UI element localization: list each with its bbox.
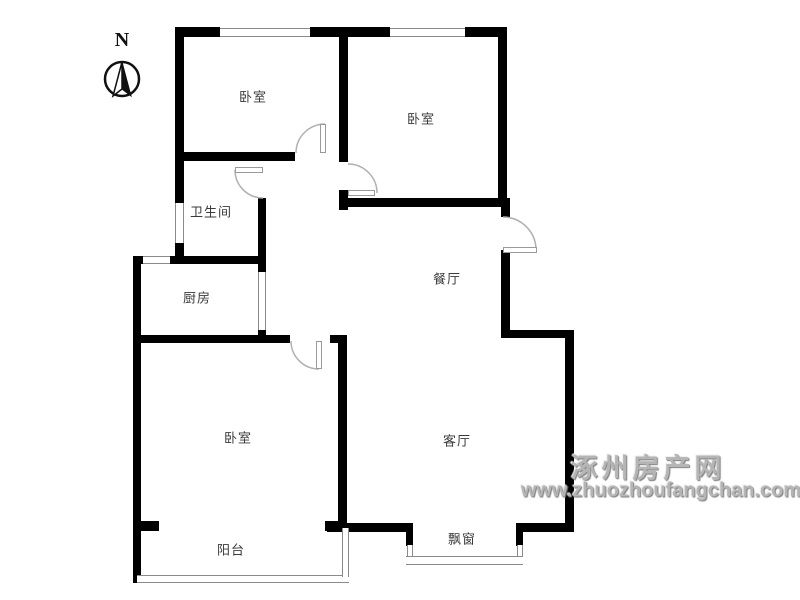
room-label-dining-room: 餐厅 [433,269,461,288]
room-label-bathroom: 卫生间 [190,202,232,221]
room-label-bay-window: 飘窗 [448,529,476,548]
door-arc-bathroom [235,170,263,198]
door-leaf [503,247,537,253]
floor-plan: N 卧室 卧室 卫生间 厨房 餐厅 客厅 卧室 阳台 飘窗 涿州房产网 www.… [0,0,800,600]
compass-needle-east [122,62,131,96]
watermark-site-url: www.zhuozhoufangchan.com [521,480,800,503]
door-leaf [348,190,375,196]
door-leaf [316,341,322,369]
north-label: N [115,29,130,51]
door-arc-bedroom-2 [348,164,377,193]
room-label-kitchen: 厨房 [183,288,211,307]
compass-needle-west [113,62,122,96]
door-arc-entry [503,217,536,250]
room-label-living-room: 客厅 [443,431,471,450]
room-label-bedroom-top-left: 卧室 [239,87,267,106]
room-label-balcony: 阳台 [217,540,245,559]
door-leaf [235,167,263,173]
door-leaf [320,124,326,153]
door-arc-bedroom-3 [291,341,319,369]
room-label-bedroom-bottom: 卧室 [224,428,252,447]
north-compass: N [97,24,147,114]
room-label-bedroom-top-right: 卧室 [407,109,435,128]
